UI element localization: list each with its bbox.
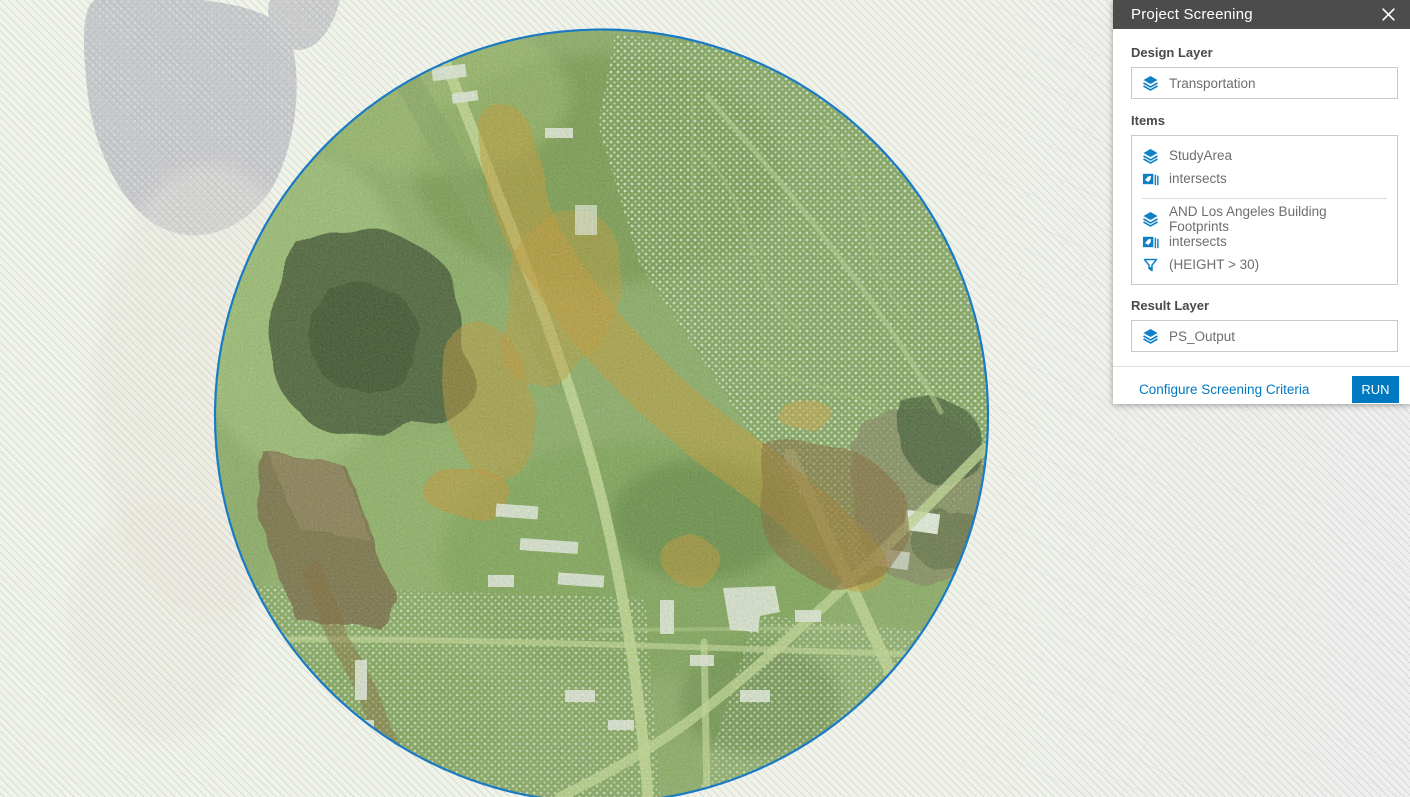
close-button[interactable] <box>1379 6 1397 24</box>
item-row-layer: StudyArea <box>1142 144 1387 167</box>
intersects-icon <box>1142 171 1159 187</box>
layers-icon <box>1142 75 1159 91</box>
items-box: StudyArea intersects AND Los Angeles <box>1131 135 1398 285</box>
design-layer-box[interactable]: Transportation <box>1131 67 1398 99</box>
items-label: Items <box>1131 113 1398 128</box>
close-icon <box>1381 7 1396 22</box>
design-layer-value: Transportation <box>1169 76 1256 91</box>
item-row-filter: (HEIGHT > 30) <box>1142 253 1387 276</box>
result-layer-value: PS_Output <box>1169 329 1235 344</box>
item-row-layer: AND Los Angeles Building Footprints <box>1142 207 1387 230</box>
design-layer-label: Design Layer <box>1131 45 1398 60</box>
project-screening-panel: Project Screening Design Layer Transport… <box>1113 0 1410 404</box>
panel-footer: Configure Screening Criteria RUN <box>1113 366 1410 411</box>
configure-screening-criteria-link[interactable]: Configure Screening Criteria <box>1139 382 1352 397</box>
layers-icon <box>1142 211 1159 227</box>
items-divider <box>1142 198 1387 199</box>
panel-header: Project Screening <box>1113 0 1410 29</box>
item-text: (HEIGHT > 30) <box>1169 257 1259 272</box>
intersects-icon <box>1142 234 1159 250</box>
run-button[interactable]: RUN <box>1352 376 1399 403</box>
panel-body: Design Layer Transportation Items StudyA… <box>1113 29 1410 366</box>
panel-title: Project Screening <box>1131 6 1379 23</box>
item-text: intersects <box>1169 234 1227 249</box>
filter-icon <box>1142 257 1159 273</box>
layers-icon <box>1142 328 1159 344</box>
layers-icon <box>1142 148 1159 164</box>
result-layer-box[interactable]: PS_Output <box>1131 320 1398 352</box>
item-text: StudyArea <box>1169 148 1232 163</box>
item-text: intersects <box>1169 171 1227 186</box>
item-row-operator: intersects <box>1142 167 1387 190</box>
item-text: AND Los Angeles Building Footprints <box>1169 204 1387 234</box>
result-layer-label: Result Layer <box>1131 298 1398 313</box>
